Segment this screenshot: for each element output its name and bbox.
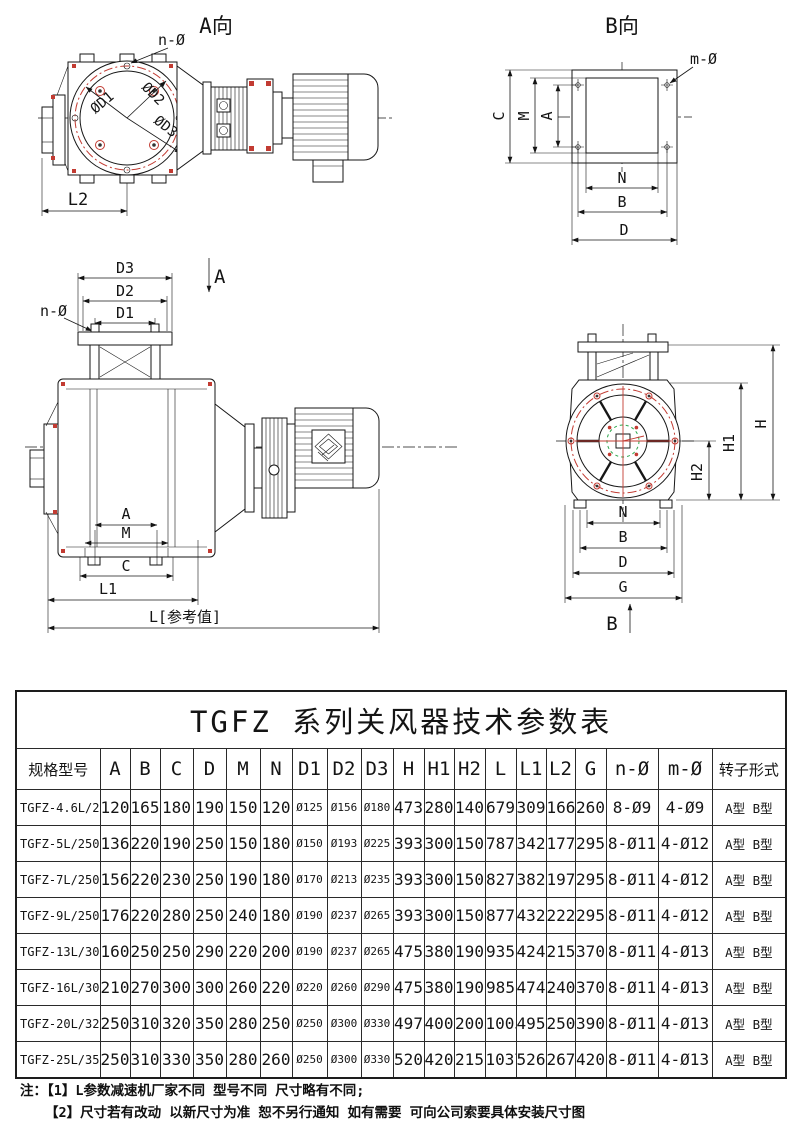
col-header-10: H bbox=[393, 749, 424, 790]
table-cell: 240 bbox=[546, 970, 575, 1006]
table-cell: 1037 bbox=[485, 1042, 516, 1079]
dim-label-a-b: A bbox=[538, 111, 556, 120]
table-cell: A型 B型 bbox=[712, 790, 786, 826]
dim-label-n-e: N bbox=[618, 503, 627, 521]
dim-label-c-b: C bbox=[490, 111, 508, 120]
table-header-row: 规格型号ABCDMND1D2D3HH1H2LL1L2Gn-Øm-Ø转子形式 bbox=[16, 749, 786, 790]
table-cell: 260 bbox=[260, 1042, 292, 1079]
table-cell: 420 bbox=[575, 1042, 606, 1079]
table-cell: 215 bbox=[546, 934, 575, 970]
table-cell: 393 bbox=[393, 862, 424, 898]
col-header-4: D bbox=[193, 749, 226, 790]
table-cell: 475 bbox=[393, 934, 424, 970]
table-cell: 370 bbox=[575, 970, 606, 1006]
table-cell: 877 bbox=[485, 898, 516, 934]
table-cell: Ø193 bbox=[327, 826, 361, 862]
table-body: TGFZ-4.6L/210120165180190150120Ø125Ø156Ø… bbox=[16, 790, 786, 1079]
table-cell: 295 bbox=[575, 862, 606, 898]
table-cell: 210 bbox=[100, 970, 130, 1006]
table-cell: Ø125 bbox=[292, 790, 327, 826]
table-cell: 370 bbox=[575, 934, 606, 970]
table-cell: Ø250 bbox=[292, 1006, 327, 1042]
table-cell: 190 bbox=[160, 826, 193, 862]
table-cell: 222 bbox=[546, 898, 575, 934]
table-cell: Ø170 bbox=[292, 862, 327, 898]
dim-label-m-phi: m-Ø bbox=[690, 50, 717, 68]
table-cell: Ø250 bbox=[292, 1042, 327, 1079]
table-cell: 280 bbox=[160, 898, 193, 934]
table-cell: Ø300 bbox=[327, 1042, 361, 1079]
table-cell: Ø265 bbox=[361, 898, 393, 934]
table-cell: Ø213 bbox=[327, 862, 361, 898]
table-cell: 190 bbox=[193, 790, 226, 826]
table-cell: 4-Ø13 bbox=[658, 1042, 712, 1079]
table-cell: 495 bbox=[516, 1006, 546, 1042]
table-cell: 250 bbox=[193, 826, 226, 862]
col-header-6: N bbox=[260, 749, 292, 790]
dim-label-l1: L1 bbox=[99, 580, 117, 598]
col-header-16: G bbox=[575, 749, 606, 790]
table-cell: 300 bbox=[424, 898, 454, 934]
table-cell: Ø330 bbox=[361, 1042, 393, 1079]
table-cell: 120 bbox=[260, 790, 292, 826]
spec-table: TGFZ 系列关风器技术参数表 规格型号ABCDMND1D2D3HH1H2LL1… bbox=[15, 690, 787, 1079]
table-cell: 526 bbox=[516, 1042, 546, 1079]
table-row: TGFZ-25L/350250310330350280260Ø250Ø300Ø3… bbox=[16, 1042, 786, 1079]
section-a-marker: A bbox=[214, 266, 226, 288]
col-header-19: 转子形式 bbox=[712, 749, 786, 790]
dim-label-c-f: C bbox=[121, 557, 130, 575]
table-cell: 310 bbox=[130, 1042, 160, 1079]
table-cell: 787 bbox=[485, 826, 516, 862]
table-cell: Ø265 bbox=[361, 934, 393, 970]
end-view-drawing: H2 H1 H N B D G B bbox=[556, 324, 780, 635]
dim-label-d3-f: D3 bbox=[116, 259, 134, 277]
table-cell: 424 bbox=[516, 934, 546, 970]
table-cell: 166 bbox=[546, 790, 575, 826]
table-cell: 342 bbox=[516, 826, 546, 862]
table-cell: 176 bbox=[100, 898, 130, 934]
table-cell: 180 bbox=[260, 862, 292, 898]
table-cell: 250 bbox=[100, 1042, 130, 1079]
table-cell: Ø225 bbox=[361, 826, 393, 862]
dim-label-l2: L2 bbox=[68, 190, 88, 210]
table-cell: 330 bbox=[160, 1042, 193, 1079]
table-cell: 200 bbox=[454, 1006, 485, 1042]
section-b-marker: B bbox=[606, 613, 617, 635]
dim-label-b-b: B bbox=[617, 193, 626, 211]
table-row: TGFZ-7L/250156220230250190180Ø170Ø213Ø23… bbox=[16, 862, 786, 898]
dim-label-l-ref: L[参考值] bbox=[149, 608, 221, 626]
table-row: TGFZ-5L/250136220190250150180Ø150Ø193Ø22… bbox=[16, 826, 786, 862]
table-cell: Ø330 bbox=[361, 1006, 393, 1042]
table-cell: 220 bbox=[130, 862, 160, 898]
table-cell: A型 B型 bbox=[712, 1042, 786, 1079]
col-header-18: m-Ø bbox=[658, 749, 712, 790]
table-cell: 215 bbox=[454, 1042, 485, 1079]
table-cell: 220 bbox=[260, 970, 292, 1006]
table-cell: 8-Ø11 bbox=[606, 826, 658, 862]
dim-label-g: G bbox=[618, 578, 627, 596]
table-cell: 280 bbox=[424, 790, 454, 826]
table-cell: 267 bbox=[546, 1042, 575, 1079]
table-cell: TGFZ-20L/320 bbox=[16, 1006, 100, 1042]
table-cell: 180 bbox=[260, 826, 292, 862]
table-cell: 320 bbox=[160, 1006, 193, 1042]
table-cell: TGFZ-16L/300 bbox=[16, 970, 100, 1006]
table-cell: 400 bbox=[424, 1006, 454, 1042]
table-cell: 140 bbox=[454, 790, 485, 826]
view-b-drawing: B向 C M A N B D m bbox=[490, 14, 717, 245]
table-cell: 290 bbox=[193, 934, 226, 970]
table-cell: 156 bbox=[100, 862, 130, 898]
table-cell: 197 bbox=[546, 862, 575, 898]
view-a-title: A向 bbox=[199, 14, 233, 38]
table-cell: 935 bbox=[485, 934, 516, 970]
table-cell: A型 B型 bbox=[712, 898, 786, 934]
table-row: TGFZ-4.6L/210120165180190150120Ø125Ø156Ø… bbox=[16, 790, 786, 826]
table-cell: Ø237 bbox=[327, 934, 361, 970]
table-title-row: TGFZ 系列关风器技术参数表 bbox=[16, 691, 786, 749]
table-cell: 150 bbox=[226, 790, 260, 826]
table-cell: 295 bbox=[575, 898, 606, 934]
table-title: TGFZ 系列关风器技术参数表 bbox=[16, 691, 786, 749]
table-cell: TGFZ-13L/300 bbox=[16, 934, 100, 970]
table-cell: 150 bbox=[454, 826, 485, 862]
table-cell: Ø190 bbox=[292, 934, 327, 970]
table-cell: 300 bbox=[160, 970, 193, 1006]
table-cell: 250 bbox=[546, 1006, 575, 1042]
dim-label-d-e: D bbox=[618, 553, 627, 571]
footnote-1: 注：【1】L参数减速机厂家不同 型号不同 尺寸略有不同; bbox=[20, 1080, 585, 1102]
view-a-drawing: A向 bbox=[38, 14, 392, 216]
table-cell: 393 bbox=[393, 826, 424, 862]
col-header-14: L1 bbox=[516, 749, 546, 790]
col-header-0: 规格型号 bbox=[16, 749, 100, 790]
engineering-drawing: A向 bbox=[0, 0, 800, 688]
col-header-3: C bbox=[160, 749, 193, 790]
table-cell: 300 bbox=[193, 970, 226, 1006]
table-cell: 280 bbox=[226, 1006, 260, 1042]
table-cell: 260 bbox=[575, 790, 606, 826]
table-cell: 390 bbox=[575, 1006, 606, 1042]
table-cell: 200 bbox=[260, 934, 292, 970]
table-cell: 280 bbox=[226, 1042, 260, 1079]
table-cell: 300 bbox=[424, 862, 454, 898]
dim-label-n-phi-f: n-Ø bbox=[40, 302, 67, 320]
table-cell: 4-Ø13 bbox=[658, 970, 712, 1006]
table-cell: 8-Ø11 bbox=[606, 862, 658, 898]
col-header-17: n-Ø bbox=[606, 749, 658, 790]
table-cell: Ø220 bbox=[292, 970, 327, 1006]
table-cell: TGFZ-9L/250 bbox=[16, 898, 100, 934]
table-cell: 679 bbox=[485, 790, 516, 826]
table-cell: Ø290 bbox=[361, 970, 393, 1006]
table-cell: 250 bbox=[130, 934, 160, 970]
table-row: TGFZ-16L/300210270300300260220Ø220Ø260Ø2… bbox=[16, 970, 786, 1006]
table-cell: 120 bbox=[100, 790, 130, 826]
view-b-title: B向 bbox=[605, 14, 639, 38]
table-cell: 497 bbox=[393, 1006, 424, 1042]
technical-drawing-sheet: { "views": { "view_a": { "title": "A向", … bbox=[0, 0, 800, 1145]
table-row: TGFZ-9L/250176220280250240180Ø190Ø237Ø26… bbox=[16, 898, 786, 934]
table-cell: 420 bbox=[424, 1042, 454, 1079]
table-cell: 350 bbox=[193, 1006, 226, 1042]
col-header-5: M bbox=[226, 749, 260, 790]
dim-label-h: H bbox=[752, 419, 770, 428]
table-cell: 827 bbox=[485, 862, 516, 898]
table-cell: A型 B型 bbox=[712, 970, 786, 1006]
dim-label-h2: H2 bbox=[688, 463, 706, 481]
table-cell: 230 bbox=[160, 862, 193, 898]
table-cell: 474 bbox=[516, 970, 546, 1006]
table-cell: 250 bbox=[100, 1006, 130, 1042]
table-cell: 136 bbox=[100, 826, 130, 862]
table-cell: 220 bbox=[226, 934, 260, 970]
table-cell: 520 bbox=[393, 1042, 424, 1079]
table-cell: A型 B型 bbox=[712, 1006, 786, 1042]
table-cell: 190 bbox=[226, 862, 260, 898]
table-cell: Ø300 bbox=[327, 1006, 361, 1042]
dim-label-d2-f: D2 bbox=[116, 282, 134, 300]
table-cell: TGFZ-5L/250 bbox=[16, 826, 100, 862]
col-header-15: L2 bbox=[546, 749, 575, 790]
table-cell: 177 bbox=[546, 826, 575, 862]
table-cell: 382 bbox=[516, 862, 546, 898]
table-cell: Ø156 bbox=[327, 790, 361, 826]
table-row: TGFZ-13L/300160250250290220200Ø190Ø237Ø2… bbox=[16, 934, 786, 970]
table-cell: Ø190 bbox=[292, 898, 327, 934]
table-cell: Ø235 bbox=[361, 862, 393, 898]
table-cell: 190 bbox=[454, 970, 485, 1006]
table-cell: 4-Ø12 bbox=[658, 898, 712, 934]
dim-label-m-b: M bbox=[515, 111, 533, 120]
table-cell: 150 bbox=[454, 862, 485, 898]
table-cell: 8-Ø9 bbox=[606, 790, 658, 826]
table-cell: Ø237 bbox=[327, 898, 361, 934]
table-cell: TGFZ-25L/350 bbox=[16, 1042, 100, 1079]
table-cell: 350 bbox=[193, 1042, 226, 1079]
dim-label-a-f: A bbox=[121, 505, 130, 523]
table-cell: Ø260 bbox=[327, 970, 361, 1006]
col-header-1: A bbox=[100, 749, 130, 790]
table-cell: 8-Ø11 bbox=[606, 1042, 658, 1079]
table-cell: 473 bbox=[393, 790, 424, 826]
table-cell: 380 bbox=[424, 970, 454, 1006]
dim-label-m-f: M bbox=[121, 524, 130, 542]
table-cell: 4-Ø13 bbox=[658, 934, 712, 970]
table-cell: 310 bbox=[130, 1006, 160, 1042]
table-cell: 240 bbox=[226, 898, 260, 934]
table-cell: 4-Ø12 bbox=[658, 826, 712, 862]
table-cell: 4-Ø9 bbox=[658, 790, 712, 826]
table-cell: 250 bbox=[193, 898, 226, 934]
table-cell: 4-Ø12 bbox=[658, 862, 712, 898]
table-cell: 250 bbox=[260, 1006, 292, 1042]
table-cell: 160 bbox=[100, 934, 130, 970]
table-cell: 165 bbox=[130, 790, 160, 826]
table-cell: 380 bbox=[424, 934, 454, 970]
table-cell: 8-Ø11 bbox=[606, 934, 658, 970]
table-cell: A型 B型 bbox=[712, 826, 786, 862]
col-header-2: B bbox=[130, 749, 160, 790]
table-cell: A型 B型 bbox=[712, 862, 786, 898]
table-cell: TGFZ-4.6L/210 bbox=[16, 790, 100, 826]
table-cell: 150 bbox=[226, 826, 260, 862]
table-cell: A型 B型 bbox=[712, 934, 786, 970]
table-cell: 985 bbox=[485, 970, 516, 1006]
table-cell: 475 bbox=[393, 970, 424, 1006]
col-header-9: D3 bbox=[361, 749, 393, 790]
table-cell: 190 bbox=[454, 934, 485, 970]
table-cell: 8-Ø11 bbox=[606, 898, 658, 934]
footnotes: 注：【1】L参数减速机厂家不同 型号不同 尺寸略有不同; 【2】尺寸若有改动 以… bbox=[20, 1080, 585, 1124]
table-cell: 220 bbox=[130, 826, 160, 862]
table-cell: 250 bbox=[160, 934, 193, 970]
footnote-2: 【2】尺寸若有改动 以新尺寸为准 恕不另行通知 如有需要 可向公司索要具体安装尺… bbox=[45, 1102, 585, 1124]
col-header-13: L bbox=[485, 749, 516, 790]
table-cell: 4-Ø13 bbox=[658, 1006, 712, 1042]
table-cell: 8-Ø11 bbox=[606, 1006, 658, 1042]
table-cell: 300 bbox=[424, 826, 454, 862]
table-cell: 180 bbox=[260, 898, 292, 934]
table-cell: 220 bbox=[130, 898, 160, 934]
table-cell: 8-Ø11 bbox=[606, 970, 658, 1006]
table-cell: 1005 bbox=[485, 1006, 516, 1042]
table-cell: 309 bbox=[516, 790, 546, 826]
table-cell: 393 bbox=[393, 898, 424, 934]
dim-label-n-phi-a: n-Ø bbox=[158, 31, 185, 49]
dim-label-d1-f: D1 bbox=[116, 304, 134, 322]
col-header-11: H1 bbox=[424, 749, 454, 790]
table-cell: 180 bbox=[160, 790, 193, 826]
dim-label-d-b: D bbox=[619, 221, 628, 239]
table-cell: 260 bbox=[226, 970, 260, 1006]
dim-label-n-b: N bbox=[617, 169, 626, 187]
front-view-drawing: D3 D2 D1 A n-Ø bbox=[25, 258, 458, 633]
col-header-12: H2 bbox=[454, 749, 485, 790]
table-cell: TGFZ-7L/250 bbox=[16, 862, 100, 898]
table-cell: 150 bbox=[454, 898, 485, 934]
table-cell: Ø150 bbox=[292, 826, 327, 862]
table-cell: 250 bbox=[193, 862, 226, 898]
table-row: TGFZ-20L/320250310320350280250Ø250Ø300Ø3… bbox=[16, 1006, 786, 1042]
table-cell: 270 bbox=[130, 970, 160, 1006]
col-header-8: D2 bbox=[327, 749, 361, 790]
col-header-7: D1 bbox=[292, 749, 327, 790]
table-cell: 432 bbox=[516, 898, 546, 934]
dim-label-h1: H1 bbox=[720, 434, 738, 452]
table-cell: Ø180 bbox=[361, 790, 393, 826]
table-cell: 295 bbox=[575, 826, 606, 862]
dim-label-b-e: B bbox=[618, 528, 627, 546]
